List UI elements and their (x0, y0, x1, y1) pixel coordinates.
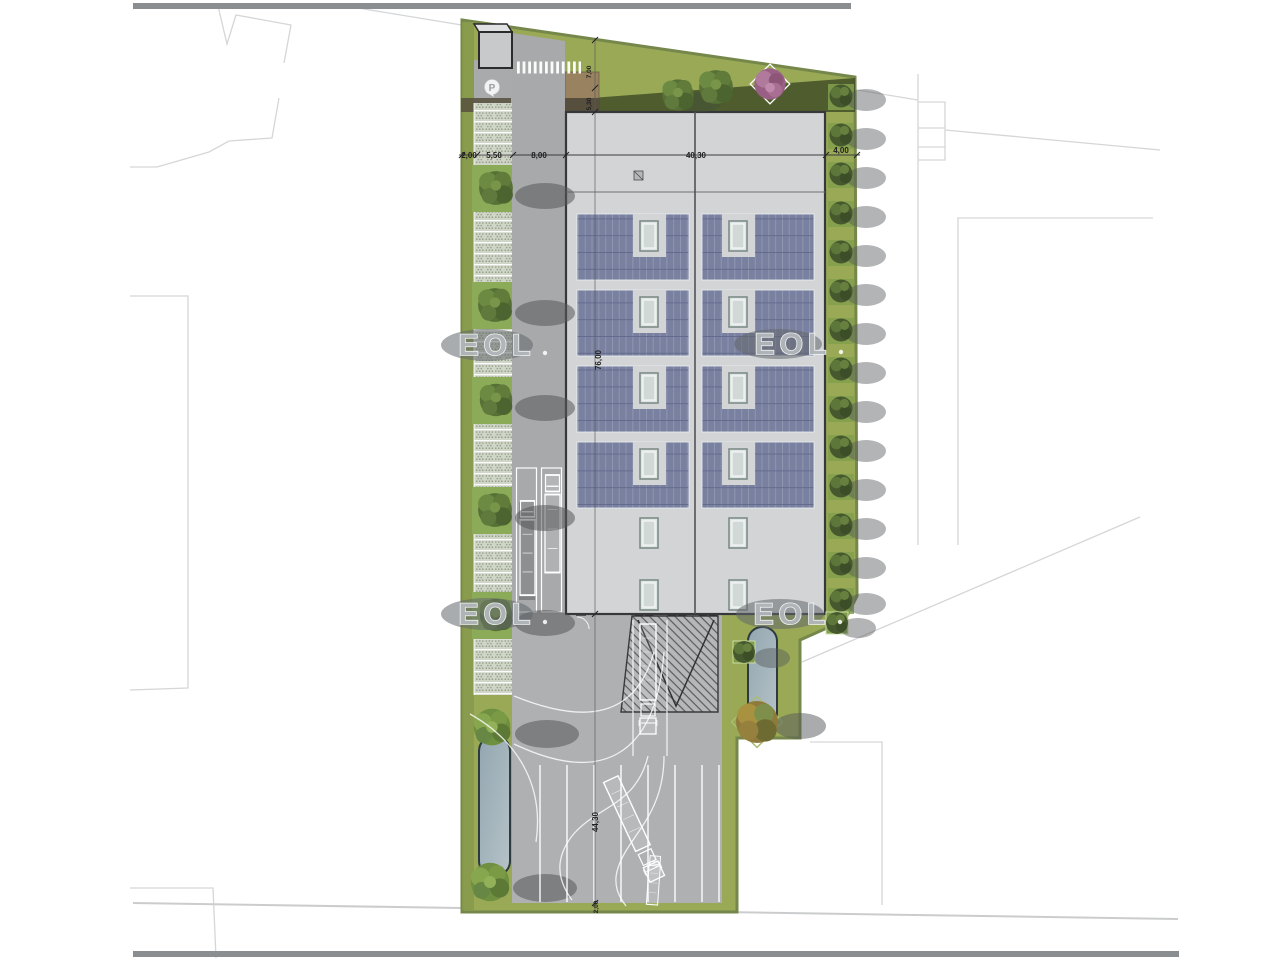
retention-basin (479, 736, 510, 876)
svg-text:EOL: EOL (459, 598, 536, 631)
site-plan: 2,00 5,50 8,00 40,30 4,00 7,00 5,30 76,0… (0, 0, 1280, 960)
tree (471, 863, 509, 901)
svg-text:EOL: EOL (755, 328, 832, 361)
tree (699, 70, 733, 104)
dim-north-setback: 7,00 (586, 65, 593, 78)
roof-hatch-marker (634, 171, 643, 180)
shrub (830, 397, 853, 420)
tree-shadow (515, 183, 575, 209)
tree-shadow (515, 720, 579, 748)
shrub (830, 589, 853, 612)
dim-right-margin: 4,00 (833, 146, 849, 155)
truck-at-dock (639, 624, 658, 734)
dim-building-width: 40,30 (686, 151, 707, 160)
warehouse-building (566, 112, 825, 614)
tree (478, 493, 512, 527)
shrub (830, 553, 853, 576)
tree (662, 79, 693, 110)
shrub (830, 163, 853, 186)
svg-text:EOL: EOL (459, 329, 536, 362)
shrub (830, 475, 853, 498)
tree (480, 384, 513, 417)
bottom-road-band (133, 951, 1179, 957)
tree (478, 288, 512, 322)
flowering-tree (754, 68, 785, 99)
shrub (830, 358, 853, 381)
tree-shadow (515, 505, 575, 531)
dim-entry-walk: 5,30 (586, 97, 593, 110)
shrub (830, 436, 853, 459)
dim-left-margin: 2,00 (461, 151, 477, 160)
tree (479, 171, 513, 205)
shrub (733, 641, 755, 663)
dim-building-length: 76,00 (594, 349, 603, 370)
eol-watermark: EOL (441, 598, 547, 631)
shrub (830, 202, 853, 225)
gate-kiosk (474, 24, 512, 68)
dim-driveway-width: 8,00 (531, 151, 547, 160)
shrub (830, 514, 853, 537)
shrub (830, 85, 853, 108)
dim-yard-length: 44,30 (591, 811, 600, 832)
shrub (830, 241, 853, 264)
top-road-band (133, 3, 851, 9)
svg-text:EOL: EOL (754, 598, 831, 631)
shrub (830, 124, 853, 147)
shrub (830, 319, 853, 342)
dim-parking-depth: 5,50 (486, 151, 502, 160)
shrub (830, 280, 853, 303)
dim-south-margin: 2,00 (593, 900, 600, 913)
tree-shadow (515, 300, 575, 326)
tree-shadow (515, 395, 575, 421)
autumn-tree (736, 701, 778, 743)
site-plan-svg: 2,00 5,50 8,00 40,30 4,00 7,00 5,30 76,0… (0, 0, 1280, 960)
eol-watermark: EOL (441, 329, 547, 362)
parking-sign-letter: P (489, 83, 496, 94)
